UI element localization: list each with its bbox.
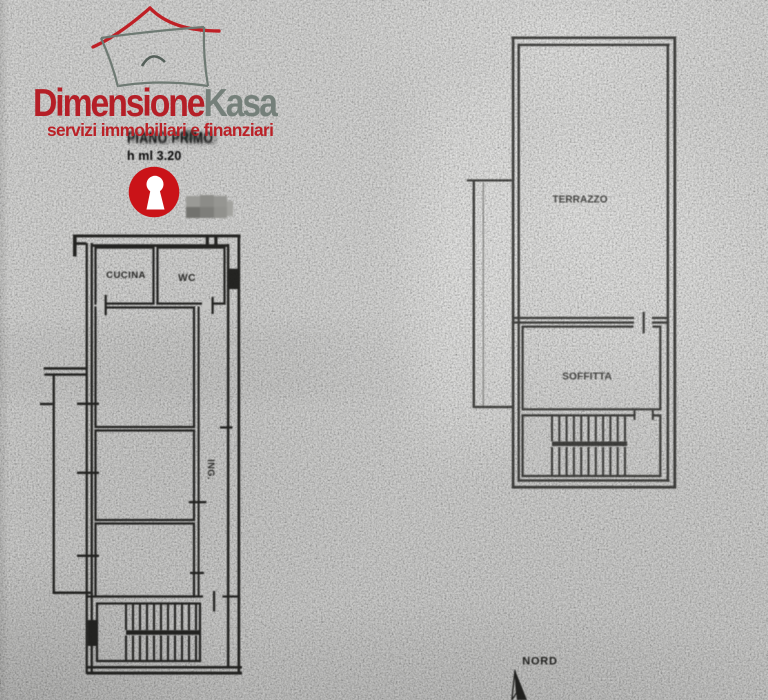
svg-text:SOFFITTA: SOFFITTA <box>562 372 612 383</box>
svg-text:TERRAZZO: TERRAZZO <box>552 195 607 206</box>
svg-text:NORD: NORD <box>522 656 558 668</box>
svg-text:WC: WC <box>178 273 196 284</box>
svg-text:CUCINA: CUCINA <box>106 270 146 281</box>
svg-text:ING.: ING. <box>206 459 216 480</box>
